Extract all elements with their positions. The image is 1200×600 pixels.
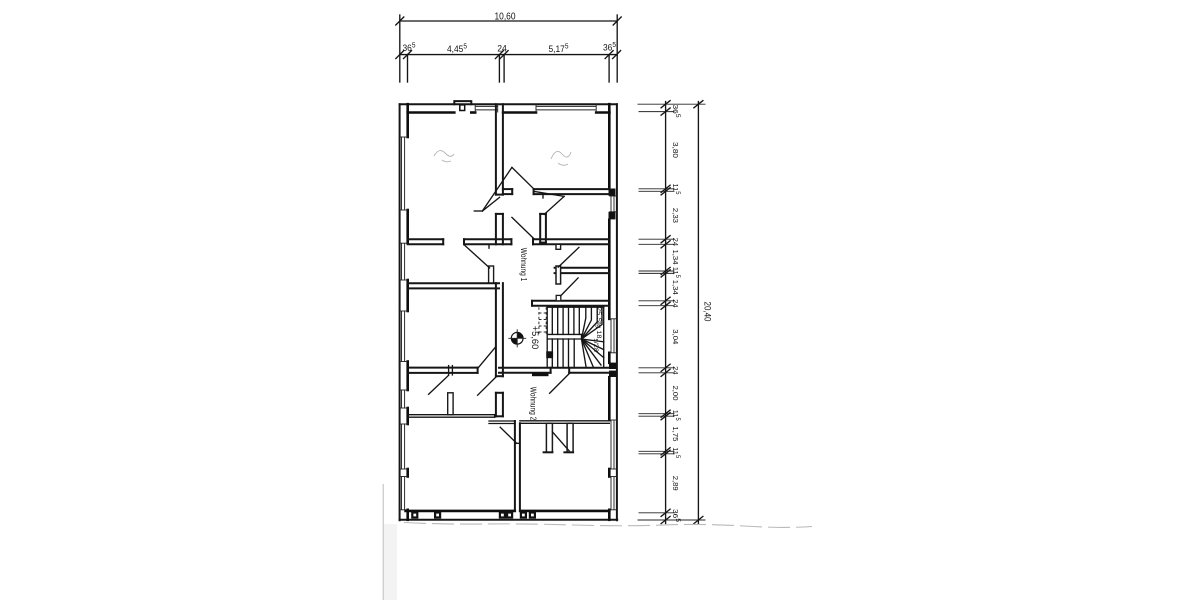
svg-text:1,34: 1,34	[671, 280, 680, 296]
svg-text:Wohnung 2: Wohnung 2	[529, 387, 538, 421]
svg-text:10,60: 10,60	[495, 11, 516, 23]
svg-text:24: 24	[671, 299, 680, 308]
svg-text:Wohnung 1: Wohnung 1	[519, 248, 528, 282]
svg-text:2,33: 2,33	[671, 208, 680, 223]
svg-text:20,40: 20,40	[703, 302, 713, 322]
svg-text:24: 24	[497, 44, 507, 54]
svg-text:2,00: 2,00	[671, 386, 680, 401]
svg-text:3,80: 3,80	[671, 142, 680, 158]
svg-text:1,75: 1,75	[671, 426, 680, 441]
svg-text:+5,60: +5,60	[530, 326, 540, 350]
svg-text:1,34: 1,34	[671, 250, 680, 266]
svg-text:2,89: 2,89	[671, 476, 680, 491]
svg-text:24: 24	[671, 238, 680, 247]
svg-text:3,04: 3,04	[671, 329, 680, 345]
svg-text:24: 24	[671, 366, 680, 375]
